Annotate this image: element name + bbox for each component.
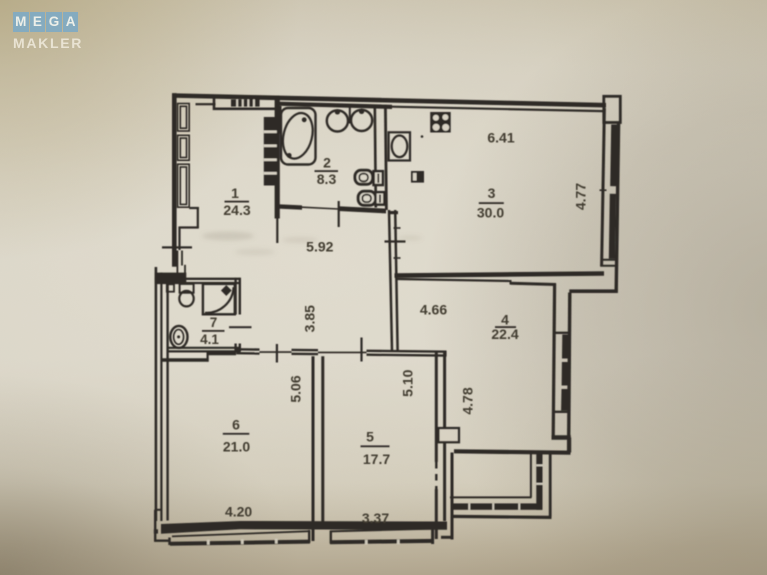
svg-text:30.0: 30.0 [477,205,504,221]
svg-text:21.0: 21.0 [223,439,250,455]
svg-text:4.1: 4.1 [200,332,219,347]
svg-text:1: 1 [231,185,239,201]
svg-text:4.78: 4.78 [459,387,475,414]
svg-text:2: 2 [323,155,331,171]
svg-text:5.06: 5.06 [288,375,304,402]
svg-text:22.4: 22.4 [491,326,518,342]
svg-text:5.10: 5.10 [399,369,415,396]
svg-text:3.37: 3.37 [362,510,389,526]
svg-text:4.77: 4.77 [573,183,589,210]
svg-text:5.92: 5.92 [306,239,333,255]
svg-text:4.66: 4.66 [420,302,447,318]
svg-text:6: 6 [232,417,240,433]
svg-text:8.3: 8.3 [317,171,337,187]
svg-text:17.7: 17.7 [363,451,390,467]
svg-text:3: 3 [488,185,496,201]
svg-text:3.85: 3.85 [302,305,318,332]
svg-text:24.3: 24.3 [223,202,250,218]
svg-text:5: 5 [366,429,374,445]
svg-text:7: 7 [210,315,218,330]
svg-text:4.20: 4.20 [225,504,252,520]
svg-text:6.41: 6.41 [487,130,514,146]
